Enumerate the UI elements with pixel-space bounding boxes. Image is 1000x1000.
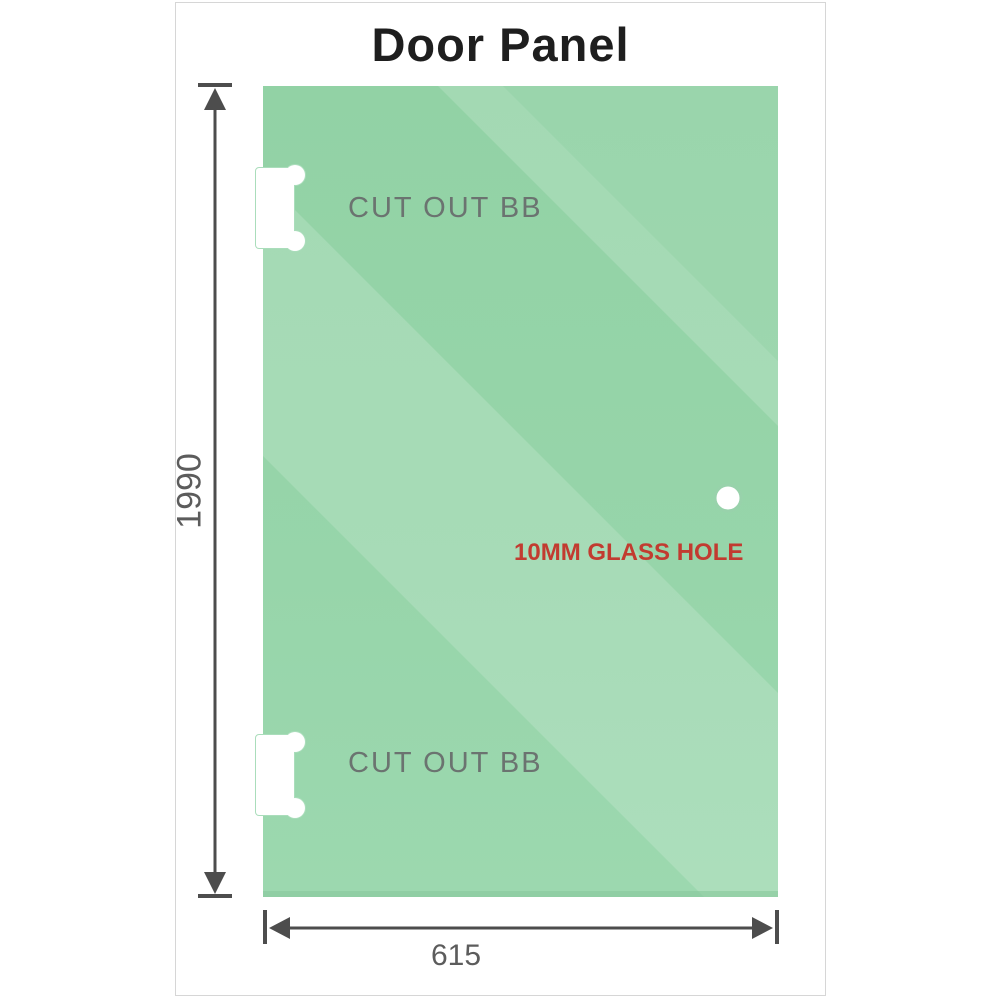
width-dimension-label: 615: [416, 939, 496, 973]
glass-hole: [715, 485, 741, 511]
cutout-label-top: CUT OUT BB: [348, 192, 543, 225]
arrow-right-icon: [752, 917, 773, 939]
glass-hole-label: 10MM GLASS HOLE: [514, 539, 743, 567]
width-dimension: [265, 910, 777, 944]
product-diagram: Door Panel: [0, 0, 1000, 1000]
cutout-label-bottom: CUT OUT BB: [348, 747, 543, 780]
glass-bottom-edge: [263, 891, 778, 897]
door-panel-drawing: [176, 3, 827, 997]
diagram-card: Door Panel: [175, 2, 826, 996]
arrow-down-icon: [204, 872, 226, 894]
height-dimension-label: 1990: [171, 453, 210, 529]
